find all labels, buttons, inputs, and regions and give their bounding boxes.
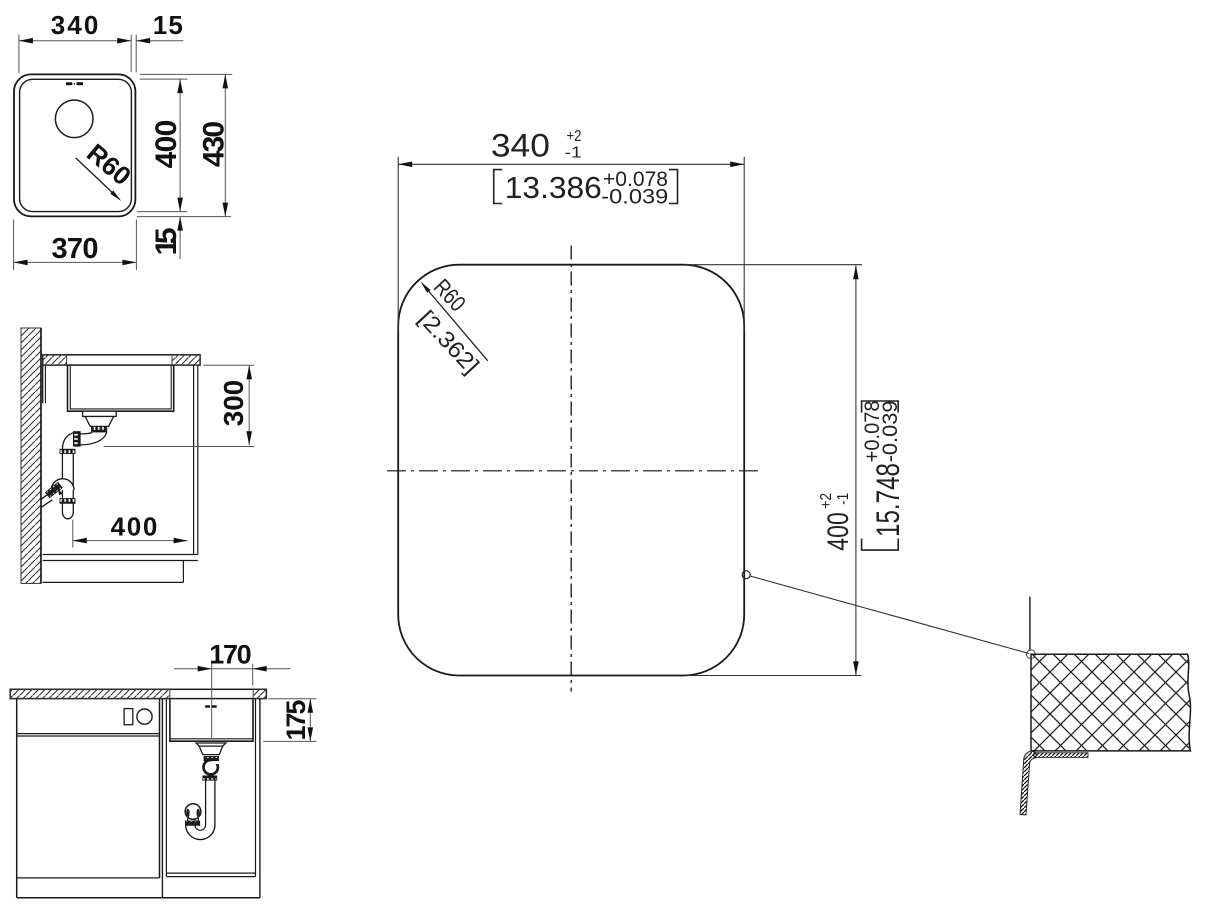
svg-text:-0.039: -0.039 [601, 186, 668, 209]
svg-text:340: 340 [491, 128, 550, 164]
svg-text:170: 170 [209, 640, 251, 670]
svg-text:15.748: 15.748 [870, 463, 906, 537]
svg-text:-1: -1 [565, 144, 582, 161]
svg-text:15: 15 [150, 227, 183, 255]
svg-text:400: 400 [111, 512, 158, 542]
svg-text:175: 175 [281, 700, 311, 741]
svg-text:13.386: 13.386 [505, 170, 602, 205]
svg-text:+2: +2 [567, 128, 582, 145]
svg-text:+2: +2 [818, 493, 835, 509]
svg-text:400: 400 [822, 512, 855, 551]
svg-text:400: 400 [150, 120, 183, 169]
svg-text:370: 370 [52, 233, 99, 265]
svg-text:15: 15 [153, 10, 183, 40]
svg-text:300: 300 [218, 380, 249, 427]
svg-text:340: 340 [51, 10, 99, 40]
svg-text:-1: -1 [835, 493, 852, 505]
